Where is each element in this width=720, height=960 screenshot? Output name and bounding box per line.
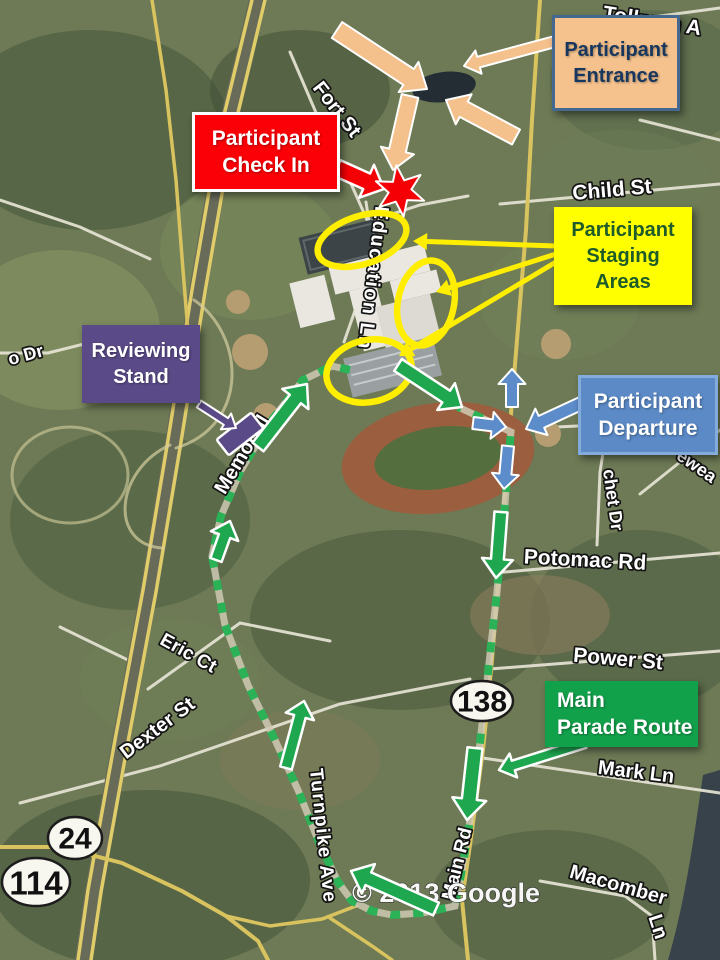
parade-map-page: Tollman A Fort St Child St Education Ln …: [0, 0, 720, 960]
callout-line: Stand: [113, 364, 169, 390]
route-shield-114: 114: [2, 858, 70, 906]
callout-line: Main: [557, 687, 605, 714]
callout-line: Participant: [212, 125, 321, 152]
callout-line: Staging: [586, 243, 659, 269]
satellite-map: Tollman A Fort St Child St Education Ln …: [0, 0, 720, 960]
ballfield: [226, 290, 250, 314]
callout-participant-staging-areas: Participant Staging Areas: [554, 207, 692, 305]
shield-138-label: 138: [457, 686, 507, 719]
callout-line: Areas: [595, 269, 651, 295]
callout-line: Entrance: [573, 63, 659, 89]
callout-line: Check In: [222, 152, 310, 179]
callout-line: Participant: [594, 388, 703, 415]
route-shield-138: 138: [451, 681, 513, 721]
route-shield-24: 24: [48, 817, 102, 859]
callout-line: Participant: [571, 217, 674, 243]
callout-main-parade-route: Main Parade Route: [545, 681, 698, 747]
callout-participant-departure: Participant Departure: [578, 375, 718, 455]
ballfield: [541, 329, 571, 359]
shield-114-label: 114: [9, 865, 63, 902]
callout-line: Participant: [564, 37, 667, 63]
callout-line: Departure: [598, 415, 697, 442]
callout-reviewing-stand: Reviewing Stand: [82, 325, 200, 403]
ballfield: [232, 334, 268, 370]
callout-participant-entrance: Participant Entrance: [552, 15, 680, 111]
callout-participant-check-in: Participant Check In: [192, 112, 340, 192]
shield-24-label: 24: [58, 823, 92, 856]
callout-line: Reviewing: [92, 338, 191, 364]
callout-line: Parade Route: [557, 714, 692, 741]
